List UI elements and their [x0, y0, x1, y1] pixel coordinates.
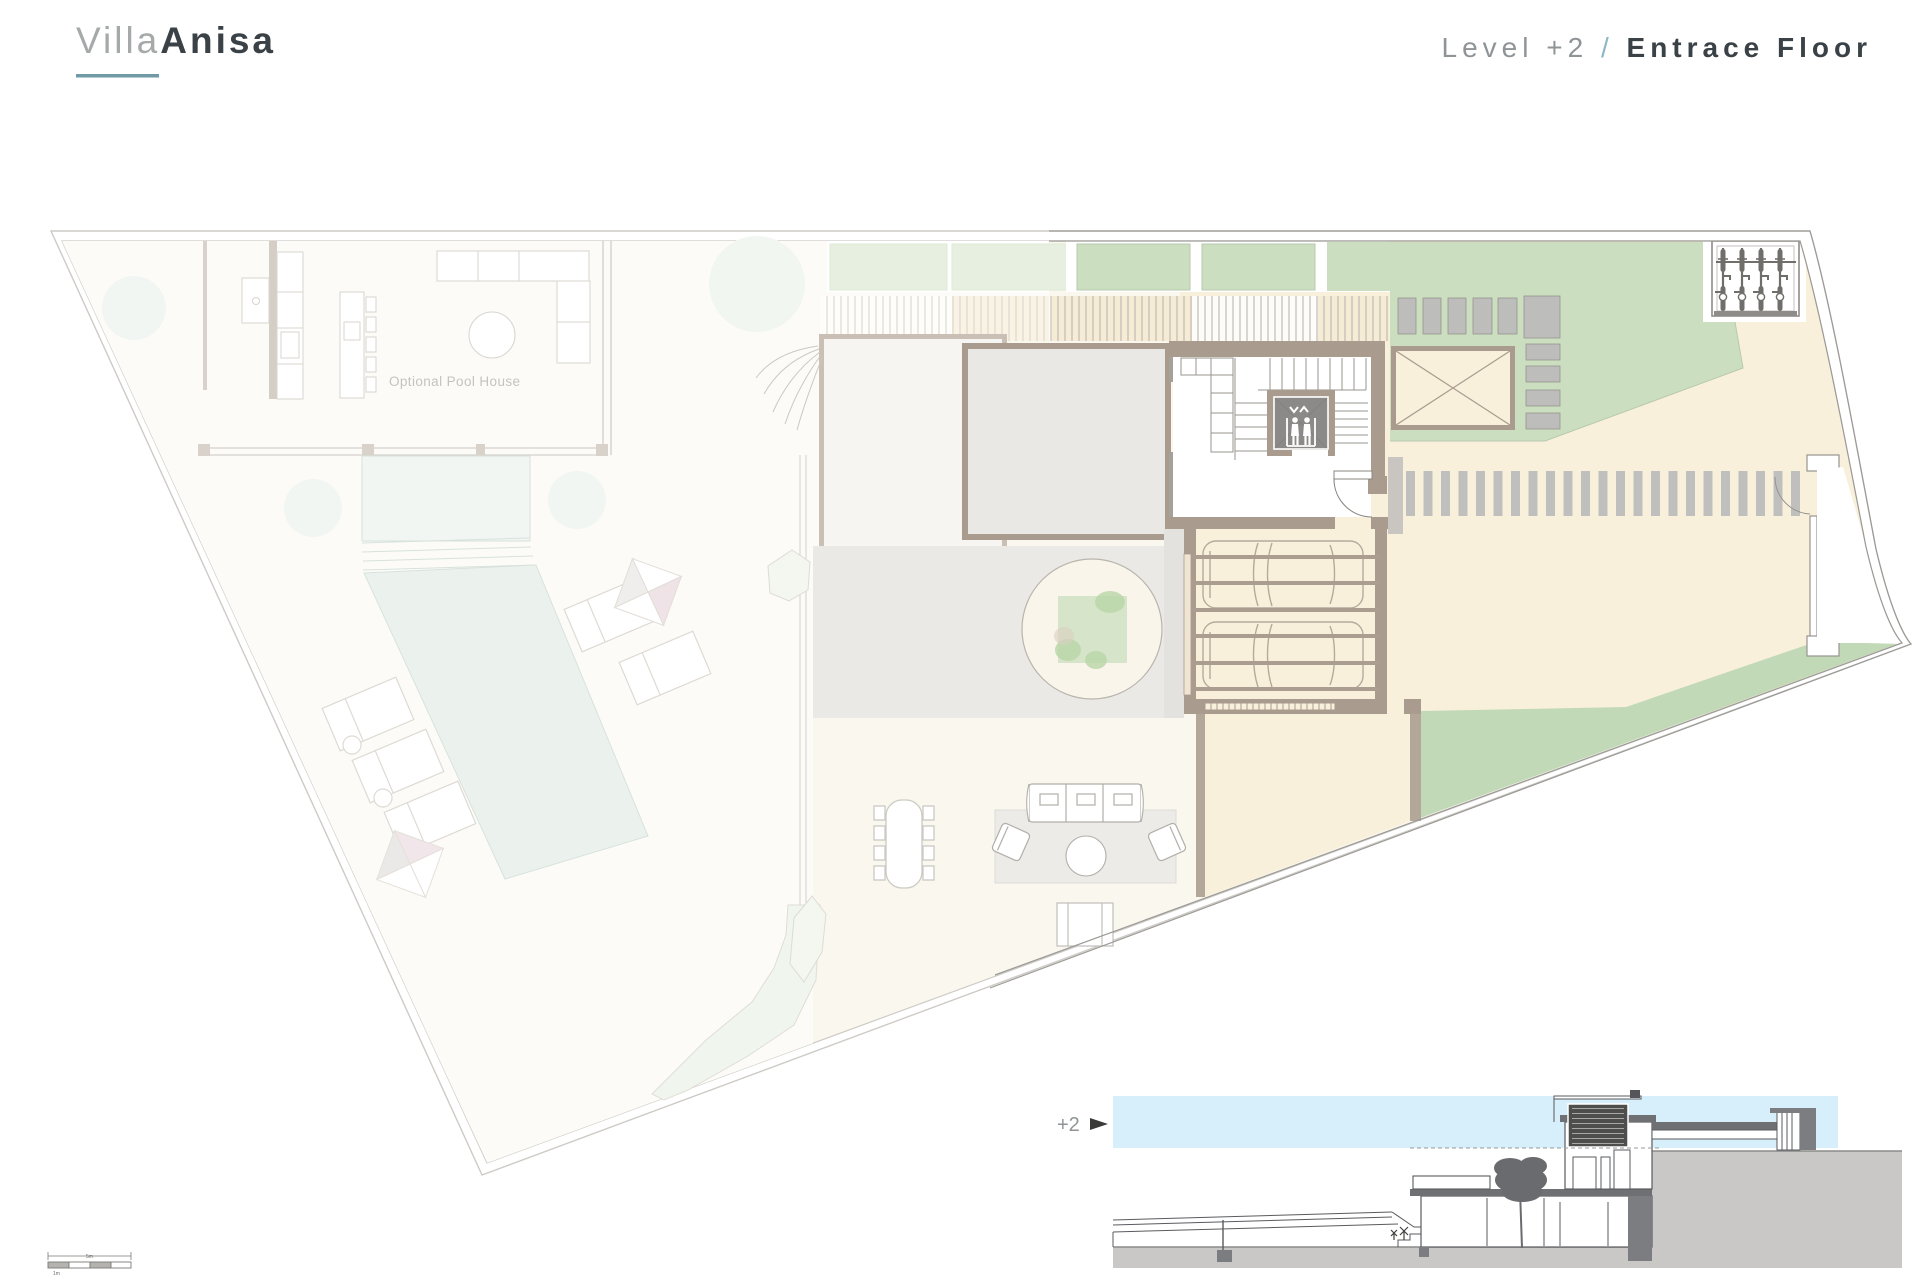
svg-text:5m: 5m: [86, 1254, 93, 1260]
svg-text:VillaAnisa: VillaAnisa: [76, 20, 276, 61]
svg-text:Optional Pool House: Optional Pool House: [389, 374, 520, 389]
svg-text:Level +2 / Entrace Floor: Level +2 / Entrace Floor: [1442, 32, 1872, 63]
svg-text:1m: 1m: [53, 1271, 60, 1277]
svg-text:+2: +2: [1057, 1114, 1080, 1136]
